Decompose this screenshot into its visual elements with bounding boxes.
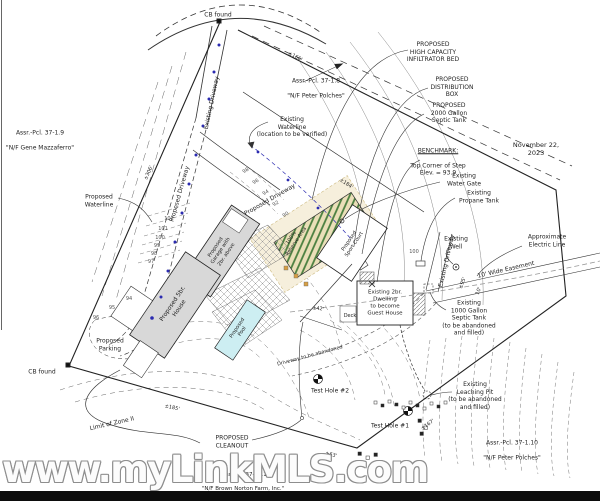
deck-label: Deck <box>344 313 357 319</box>
sheet-edge-line <box>1 0 2 330</box>
parcel-id: Assr.-Pcl. 37-1.8 <box>287 77 345 85</box>
guest-house-porch <box>413 293 425 315</box>
parcel-owner: "N/F Peter Polches" <box>483 454 541 462</box>
contour-label: 102 <box>164 216 174 222</box>
parcel-owner: "N/F Gene Mazzaferro" <box>6 144 74 152</box>
parcel-37-1-8-label: Assr.-Pcl. 37-1.8 "N/F Peter Polches" <box>287 69 345 107</box>
benchmark-callout: BENCHMARK: Top Corner of Step Elev. = 93… <box>410 139 465 177</box>
cb-found-left-label: CB found <box>28 368 55 376</box>
contour-label: 96 <box>93 315 99 321</box>
electric-line-callout: Approximate Electric Line <box>528 234 566 249</box>
cb-monument-left <box>66 363 70 367</box>
propane-tank-symbol <box>416 261 425 266</box>
cleanout-symbol <box>300 416 303 419</box>
distribution-box-callout: PROPOSED DISTRIBUTION BOX <box>431 76 474 99</box>
contour-label: 98 <box>151 251 157 257</box>
existing-waterline-callout: Existing Waterline (location to be verif… <box>257 116 327 139</box>
parcel-37-1-10-label: Assr.-Pcl. 37-1.10 "N/F Peter Polches" <box>483 431 541 469</box>
parcel-id: Assr.-Pcl. 37-1.9 <box>6 129 74 137</box>
parcel-owner: "N/F Peter Polches" <box>287 92 345 100</box>
footer-bar <box>0 491 600 501</box>
contour-label: 101 <box>158 226 168 232</box>
infiltrator-bed-callout: PROPOSED HIGH CAPACITY INFILTRATOR BED <box>407 41 459 64</box>
cb-found-top-label: CB found <box>204 11 231 19</box>
test-hole-2-label: Test Hole #2 <box>311 387 349 395</box>
mls-watermark: www.myLinkMLS.com <box>2 448 428 491</box>
test-hole-1-label: Test Hole #1 <box>371 422 409 430</box>
parking-label: Proposed Parking <box>96 338 124 353</box>
water-gate-callout: Existing Water Gate <box>447 173 481 188</box>
contour-label: 95 <box>109 305 115 311</box>
leaching-pit-callout: Existing Leaching Pit (to be abandoned a… <box>448 381 501 411</box>
old-septic-tank-symbol <box>424 284 433 293</box>
plan-date: November 22, 2023 <box>504 141 568 157</box>
contour-label: 94 <box>126 296 132 302</box>
contour-label: 97 <box>148 259 154 265</box>
parcel-37-1-9-label: Assr.-Pcl. 37-1.9 "N/F Gene Mazzaferro" <box>6 121 74 159</box>
guest-house-steps <box>360 272 374 284</box>
cb-monument-top <box>217 19 221 23</box>
guest-house-label: Existing 2br. Dwelling to become Guest H… <box>367 289 402 317</box>
test-hole-2-symbol <box>314 375 323 384</box>
benchmark-title: BENCHMARK: <box>410 147 465 155</box>
septic-2000-callout: PROPOSED 2000 Gallon Septic Tank <box>431 102 467 125</box>
septic-1000-callout: Existing 1000 Gallon Septic Tank (to be … <box>442 299 495 337</box>
site-plan-image: CB found Assr.-Pcl. 37-1.8 "N/F Peter Po… <box>0 0 600 501</box>
parcel-id: Assr.-Pcl. 37-1.10 <box>483 439 541 447</box>
proposed-waterline-callout: Proposed Waterline <box>85 194 114 209</box>
contour-label: 100 <box>409 249 419 255</box>
contour-label: 99 <box>154 243 160 249</box>
propane-callout: Existing Propane Tank <box>459 190 499 205</box>
contour-label: 100 <box>155 235 165 241</box>
